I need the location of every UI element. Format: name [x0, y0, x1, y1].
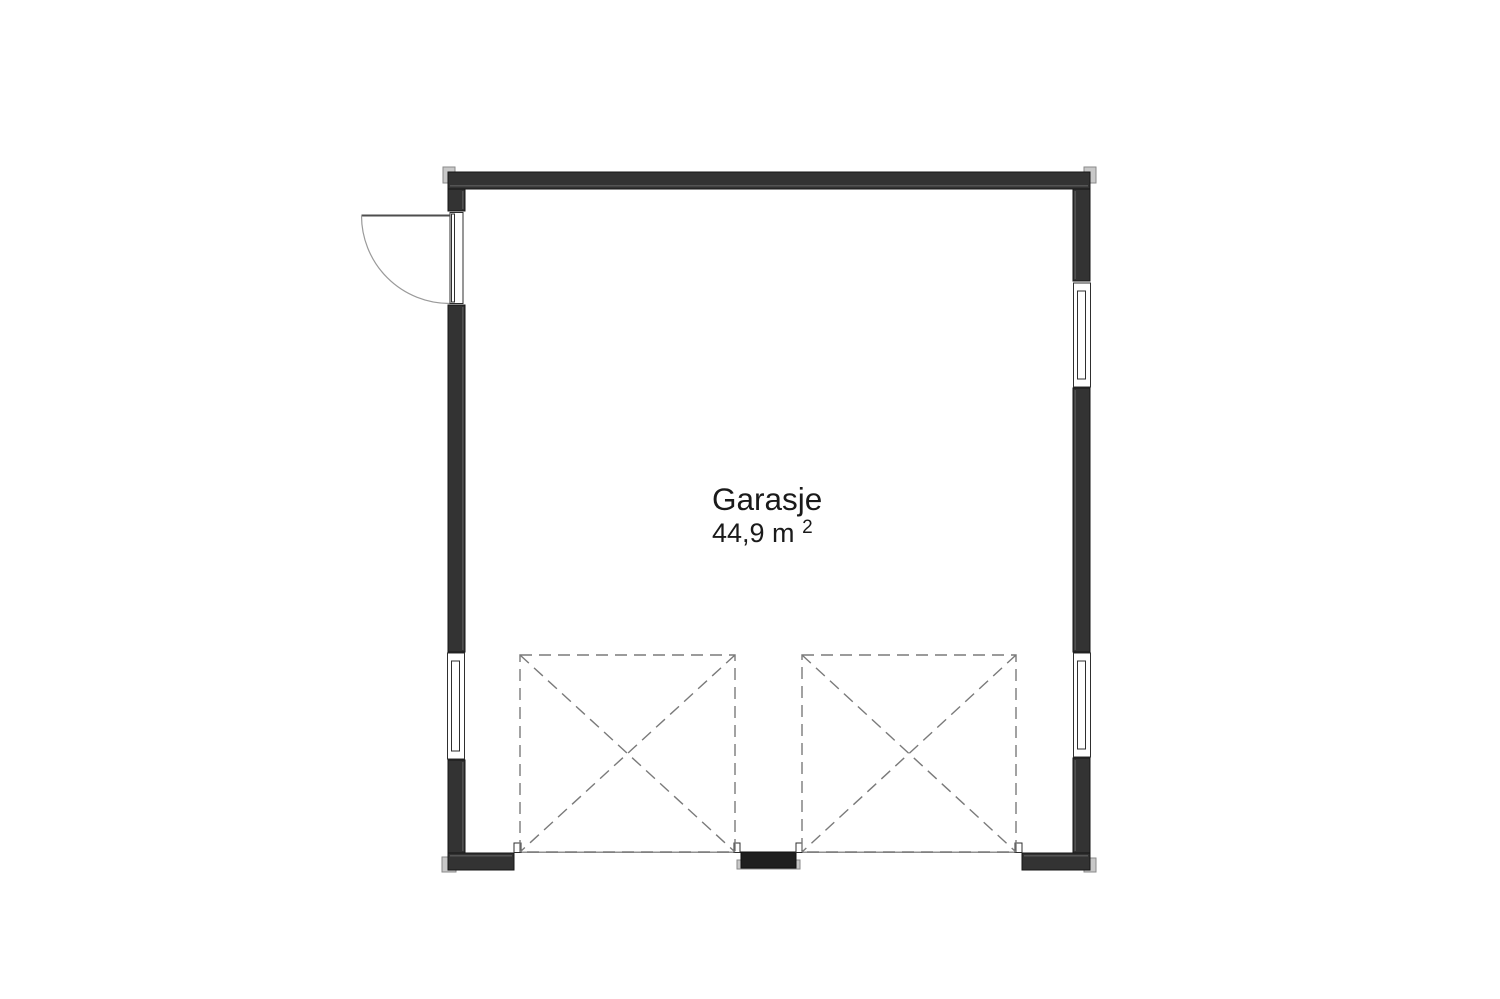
entry-door-frame-group: [450, 213, 463, 304]
jamb-opening-right-inner: [796, 843, 802, 853]
door-jamb-lines: [452, 214, 455, 302]
wall-center-pier: [741, 852, 796, 868]
garage-door-jambs: [514, 843, 1022, 853]
room-area-label: 44,9 m 2: [712, 517, 813, 548]
room-area-value: 44,9 m: [712, 518, 795, 548]
parking-bays: [520, 655, 1016, 852]
canvas: Garasje 44,9 m 2: [0, 0, 1500, 999]
window-left: [448, 653, 465, 759]
parking-bay-right: [802, 655, 1016, 852]
door-swing-arc: [362, 216, 450, 304]
window-right-lower-sash: [1078, 661, 1086, 749]
room-label: Garasje: [712, 481, 822, 517]
floor-plan: Garasje 44,9 m 2: [0, 0, 1500, 999]
window-left-sash: [452, 661, 460, 751]
entry-door: [362, 213, 464, 304]
window-right-upper: [1074, 283, 1091, 387]
window-right-lower: [1074, 653, 1091, 757]
parking-bay-left: [520, 655, 735, 852]
room-area-exponent: 2: [802, 517, 813, 538]
window-right-upper-sash: [1078, 291, 1086, 379]
